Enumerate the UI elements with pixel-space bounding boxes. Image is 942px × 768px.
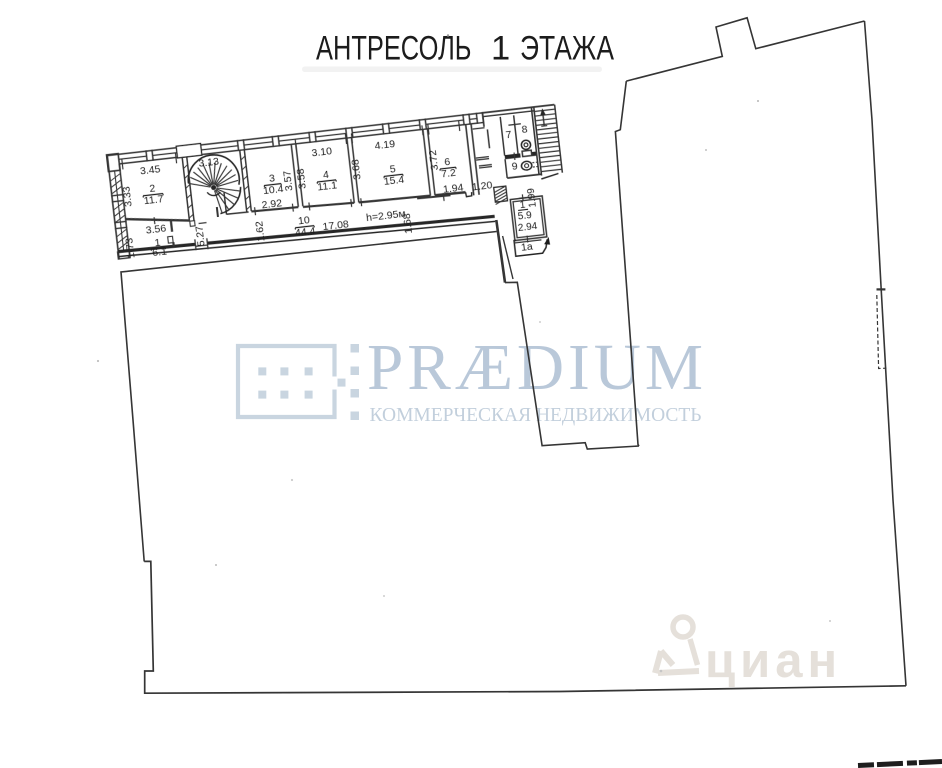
svg-text:3.56: 3.56 [145, 222, 167, 236]
svg-text:1.94: 1.94 [442, 182, 464, 196]
svg-text:5.9: 5.9 [517, 210, 532, 223]
svg-text:3.13: 3.13 [198, 156, 220, 170]
svg-text:7.2: 7.2 [441, 167, 457, 181]
svg-text:PRÆDIUM: PRÆDIUM [367, 331, 707, 404]
svg-text:1.99: 1.99 [526, 187, 539, 208]
svg-text:1а: 1а [520, 241, 533, 254]
svg-text:1: 1 [491, 30, 510, 68]
svg-text:11.1: 11.1 [317, 179, 338, 193]
svg-text:4.19: 4.19 [374, 138, 396, 152]
svg-text:3.72: 3.72 [427, 149, 441, 171]
svg-text:3.33: 3.33 [120, 186, 134, 208]
svg-text:15.4: 15.4 [383, 174, 405, 188]
svg-text:1.20: 1.20 [471, 179, 493, 193]
svg-text:10.4: 10.4 [262, 183, 284, 197]
svg-text:1.68: 1.68 [401, 213, 415, 235]
svg-text:2.92: 2.92 [261, 197, 283, 211]
svg-text:2.94: 2.94 [517, 221, 538, 234]
svg-text:КОММЕРЧЕСКАЯ НЕДВИЖИМОСТЬ: КОММЕРЧЕСКАЯ НЕДВИЖИМОСТЬ [370, 405, 702, 426]
svg-text:5.27: 5.27 [193, 225, 207, 247]
svg-text:ЭТАЖА: ЭТАЖА [520, 30, 614, 68]
svg-text:3.45: 3.45 [139, 163, 161, 177]
svg-text:3.58: 3.58 [295, 168, 309, 190]
svg-text:6.1: 6.1 [152, 245, 168, 259]
svg-text:1.73: 1.73 [123, 237, 137, 259]
svg-text:11.7: 11.7 [143, 193, 164, 207]
svg-text:1.62: 1.62 [253, 220, 267, 242]
svg-text:циан: циан [705, 634, 842, 688]
svg-text:44.4: 44.4 [294, 225, 316, 239]
svg-text:3.57: 3.57 [281, 170, 295, 192]
svg-text:3.10: 3.10 [311, 145, 333, 159]
svg-text:3.68: 3.68 [349, 158, 363, 180]
